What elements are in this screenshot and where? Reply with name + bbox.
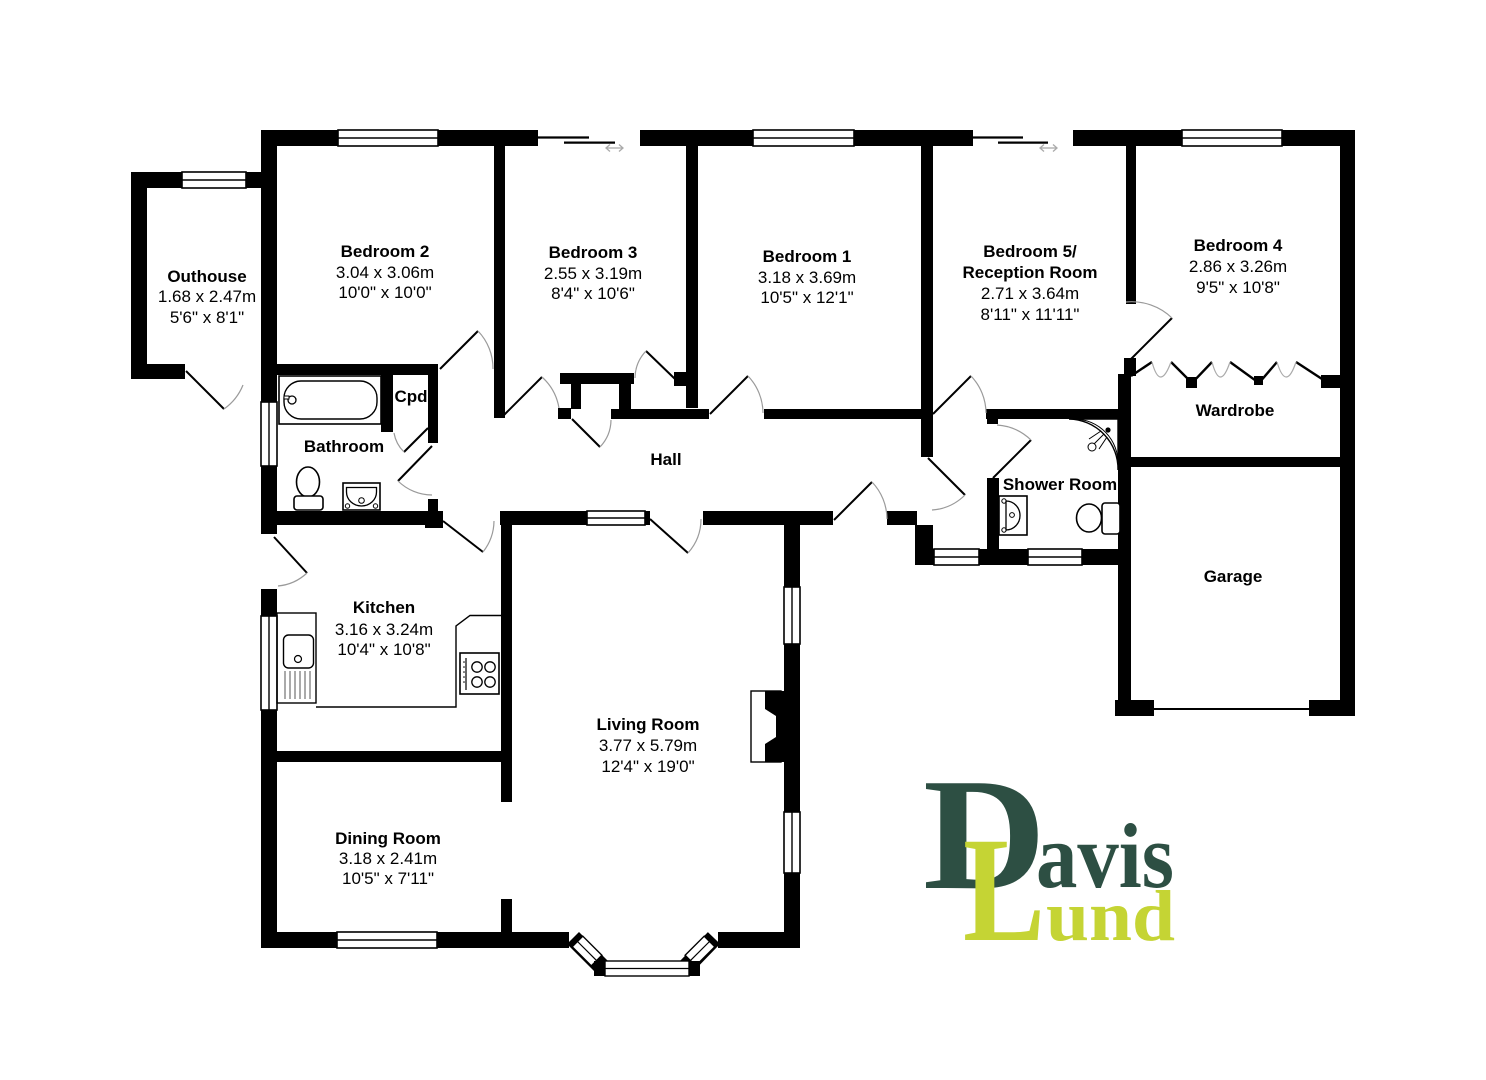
svg-text:Shower Room: Shower Room [1003, 475, 1117, 494]
svg-text:2.55 x 3.19m: 2.55 x 3.19m [544, 264, 642, 283]
svg-text:Bedroom 5/: Bedroom 5/ [983, 242, 1077, 261]
svg-text:Wardrobe: Wardrobe [1196, 401, 1275, 420]
svg-text:und: und [1046, 876, 1175, 956]
svg-text:Cpd: Cpd [394, 387, 427, 406]
svg-text:Reception Room: Reception Room [962, 263, 1097, 282]
svg-text:10'0" x 10'0": 10'0" x 10'0" [338, 283, 431, 302]
svg-text:10'5" x 12'1": 10'5" x 12'1" [760, 288, 853, 307]
svg-text:8'4" x 10'6": 8'4" x 10'6" [551, 284, 635, 303]
svg-text:9'5" x 10'8": 9'5" x 10'8" [1196, 278, 1280, 297]
svg-text:Bedroom 2: Bedroom 2 [341, 242, 430, 261]
svg-text:Living Room: Living Room [597, 715, 700, 734]
svg-text:Kitchen: Kitchen [353, 598, 415, 617]
svg-text:3.16 x 3.24m: 3.16 x 3.24m [335, 620, 433, 639]
svg-text:Outhouse: Outhouse [167, 267, 246, 286]
svg-text:Garage: Garage [1204, 567, 1263, 586]
svg-text:Dining Room: Dining Room [335, 829, 441, 848]
svg-text:3.77 x 5.79m: 3.77 x 5.79m [599, 736, 697, 755]
svg-text:L: L [963, 807, 1045, 973]
svg-text:2.71 x 3.64m: 2.71 x 3.64m [981, 284, 1079, 303]
svg-text:Bedroom 4: Bedroom 4 [1194, 236, 1283, 255]
svg-text:3.18 x 2.41m: 3.18 x 2.41m [339, 849, 437, 868]
svg-text:3.18 x 3.69m: 3.18 x 3.69m [758, 268, 856, 287]
svg-text:10'5" x 7'11": 10'5" x 7'11" [342, 869, 434, 888]
svg-text:5'6" x 8'1": 5'6" x 8'1" [170, 308, 244, 327]
svg-text:8'11" x 11'11": 8'11" x 11'11" [981, 305, 1080, 324]
svg-text:Bedroom 3: Bedroom 3 [549, 243, 638, 262]
svg-text:1.68 x 2.47m: 1.68 x 2.47m [158, 287, 256, 306]
svg-text:3.04 x 3.06m: 3.04 x 3.06m [336, 263, 434, 282]
svg-text:2.86 x 3.26m: 2.86 x 3.26m [1189, 257, 1287, 276]
svg-text:Bathroom: Bathroom [304, 437, 384, 456]
svg-text:12'4" x 19'0": 12'4" x 19'0" [601, 757, 694, 776]
svg-text:10'4" x 10'8": 10'4" x 10'8" [337, 640, 430, 659]
svg-text:Hall: Hall [650, 450, 681, 469]
svg-text:Bedroom 1: Bedroom 1 [763, 247, 852, 266]
